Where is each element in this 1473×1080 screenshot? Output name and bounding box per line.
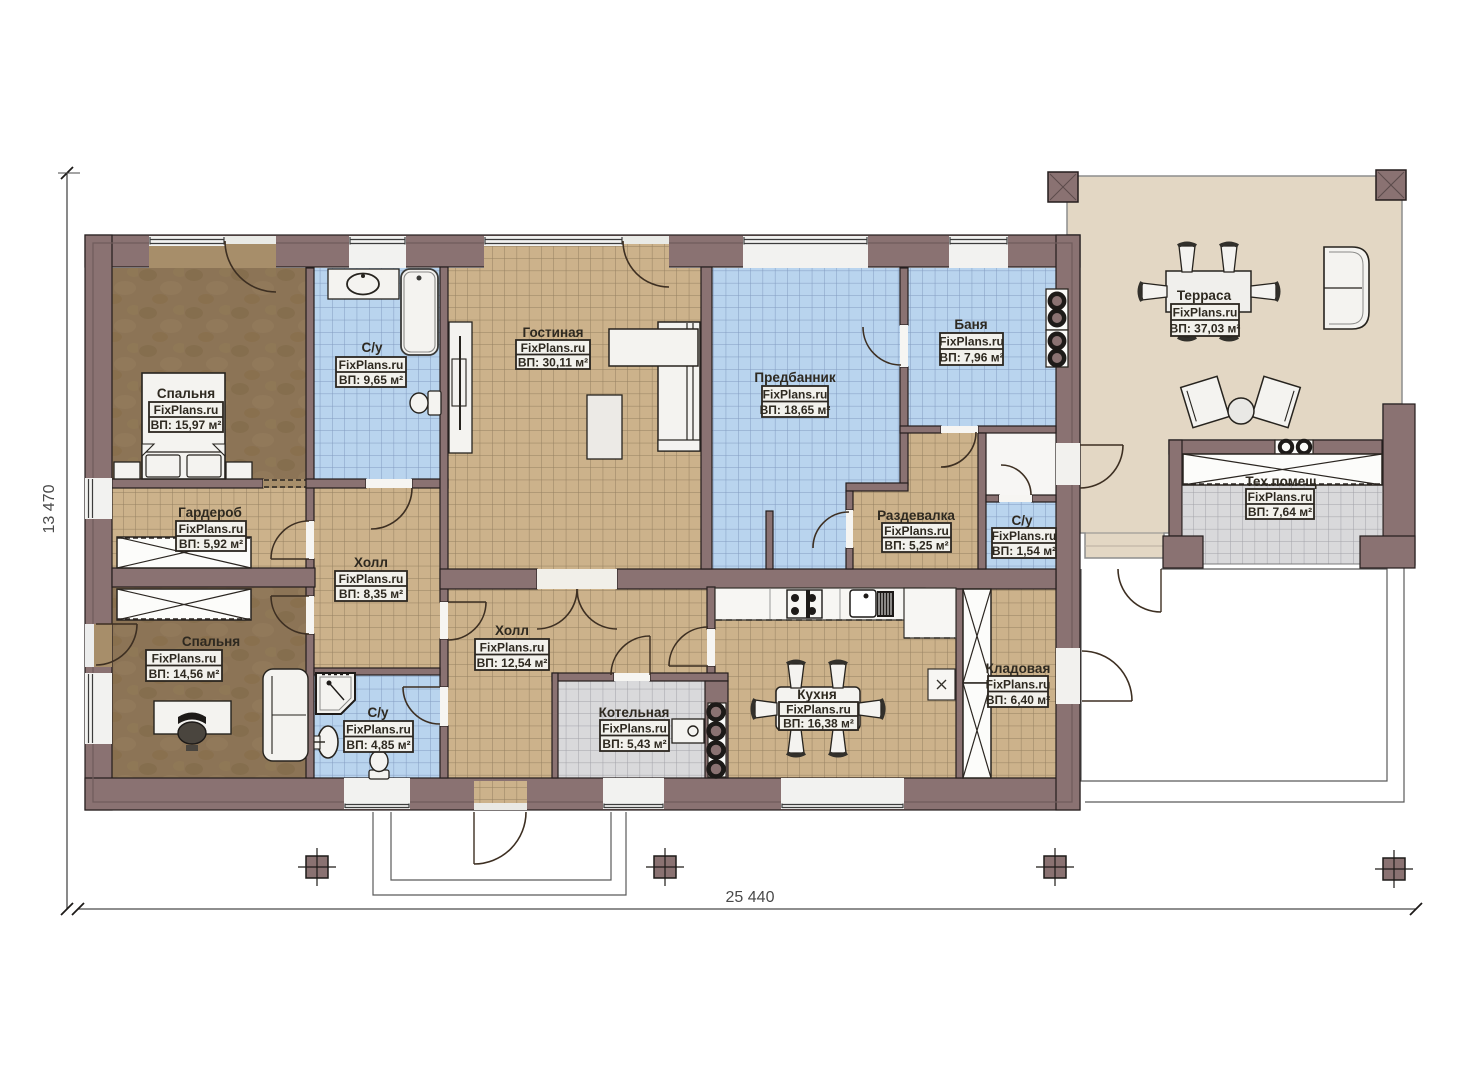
svg-text:FixPlans.ru: FixPlans.ru xyxy=(154,403,219,417)
svg-text:FixPlans.ru: FixPlans.ru xyxy=(602,721,667,735)
svg-text:С/у: С/у xyxy=(361,340,383,355)
svg-text:Холл: Холл xyxy=(354,555,388,570)
svg-text:ВП: 18,65 м²: ВП: 18,65 м² xyxy=(760,403,831,417)
svg-text:ВП: 5,25 м²: ВП: 5,25 м² xyxy=(884,538,948,552)
svg-text:ВП: 30,11 м²: ВП: 30,11 м² xyxy=(518,355,588,369)
svg-text:ВП: 37,03 м²: ВП: 37,03 м² xyxy=(1170,322,1241,336)
svg-text:25 440: 25 440 xyxy=(726,889,775,906)
svg-text:FixPlans.ru: FixPlans.ru xyxy=(986,677,1051,691)
svg-text:FixPlans.ru: FixPlans.ru xyxy=(339,358,404,372)
svg-text:ВП: 12,54 м²: ВП: 12,54 м² xyxy=(477,656,548,670)
svg-text:ВП: 7,64 м²: ВП: 7,64 м² xyxy=(1248,505,1312,519)
svg-text:Кладовая: Кладовая xyxy=(986,661,1051,676)
svg-text:Холл: Холл xyxy=(495,623,529,638)
svg-text:ВП: 7,96 м²: ВП: 7,96 м² xyxy=(939,351,1003,365)
svg-text:FixPlans.ru: FixPlans.ru xyxy=(939,335,1004,349)
svg-text:ВП: 6,40 м²: ВП: 6,40 м² xyxy=(986,693,1050,707)
svg-text:ВП: 1,54 м²: ВП: 1,54 м² xyxy=(992,544,1056,558)
svg-text:Котельная: Котельная xyxy=(599,705,670,720)
svg-text:FixPlans.ru: FixPlans.ru xyxy=(1248,490,1313,504)
svg-text:Терраса: Терраса xyxy=(1177,288,1232,303)
svg-text:ВП: 9,65 м²: ВП: 9,65 м² xyxy=(339,373,403,387)
svg-text:Спальня: Спальня xyxy=(157,386,215,401)
svg-text:FixPlans.ru: FixPlans.ru xyxy=(521,341,586,355)
svg-text:FixPlans.ru: FixPlans.ru xyxy=(179,522,244,536)
svg-text:Баня: Баня xyxy=(954,317,987,332)
svg-text:Кухня: Кухня xyxy=(797,687,836,702)
svg-text:ВП: 15,97 м²: ВП: 15,97 м² xyxy=(151,418,222,432)
svg-text:Гостиная: Гостиная xyxy=(522,325,583,340)
svg-text:Раздевалка: Раздевалка xyxy=(877,508,955,523)
svg-text:ВП: 14,56 м²: ВП: 14,56 м² xyxy=(149,667,220,681)
svg-text:13 470: 13 470 xyxy=(41,484,58,533)
svg-text:FixPlans.ru: FixPlans.ru xyxy=(346,722,411,736)
svg-text:ВП: 5,43 м²: ВП: 5,43 м² xyxy=(602,737,666,751)
svg-text:FixPlans.ru: FixPlans.ru xyxy=(992,529,1057,543)
svg-text:ВП: 5,92 м²: ВП: 5,92 м² xyxy=(179,537,243,551)
svg-text:С/у: С/у xyxy=(1011,513,1033,528)
svg-text:Гардероб: Гардероб xyxy=(178,505,242,520)
svg-text:Предбанник: Предбанник xyxy=(754,370,835,385)
svg-text:Тех.помещ: Тех.помещ xyxy=(1245,474,1317,489)
svg-text:FixPlans.ru: FixPlans.ru xyxy=(339,572,404,586)
svg-text:FixPlans.ru: FixPlans.ru xyxy=(786,703,851,717)
svg-text:FixPlans.ru: FixPlans.ru xyxy=(1173,306,1238,320)
svg-text:ВП: 8,35 м²: ВП: 8,35 м² xyxy=(339,587,403,601)
svg-text:С/у: С/у xyxy=(367,705,389,720)
svg-text:FixPlans.ru: FixPlans.ru xyxy=(480,640,545,654)
svg-text:Спальня: Спальня xyxy=(182,634,240,649)
svg-text:FixPlans.ru: FixPlans.ru xyxy=(884,524,949,538)
svg-text:FixPlans.ru: FixPlans.ru xyxy=(763,387,828,401)
svg-text:ВП: 16,38 м²: ВП: 16,38 м² xyxy=(783,717,854,731)
svg-text:ВП: 4,85 м²: ВП: 4,85 м² xyxy=(346,738,410,752)
svg-text:FixPlans.ru: FixPlans.ru xyxy=(152,651,217,665)
